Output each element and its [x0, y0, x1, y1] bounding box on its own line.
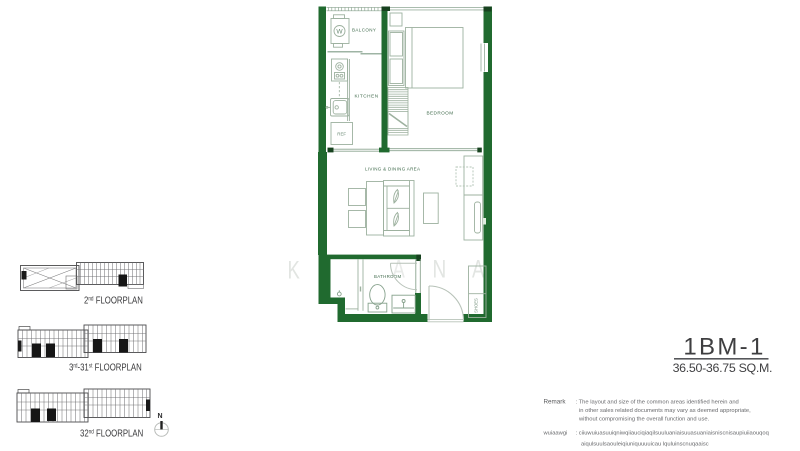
svg-text:aiqulsuulsaouleiqiuniquuuuicau: aiqulsuulsaouleiqiuniquuuuicau lquluinsc…: [581, 442, 709, 448]
svg-text:Remark: Remark: [544, 398, 567, 405]
svg-text:36.50-36.75 SQ.M.: 36.50-36.75 SQ.M.: [673, 361, 773, 375]
svg-text:A: A: [472, 255, 485, 283]
svg-text:: The layout and size of the c: : The layout and size of the common area…: [576, 399, 739, 405]
svg-text:W: W: [336, 28, 343, 35]
svg-text:BEDROOM: BEDROOM: [427, 110, 454, 115]
svg-text:SHOES: SHOES: [473, 298, 478, 313]
svg-text:REF: REF: [337, 132, 346, 137]
svg-text:wuiaawgi: wuiaawgi: [543, 431, 568, 437]
svg-text:in other sales related documen: in other sales related documents may var…: [579, 408, 751, 414]
svg-text:without compromising the overa: without compromising the overall functio…: [578, 416, 710, 422]
svg-text:BALCONY: BALCONY: [352, 27, 376, 32]
svg-text:2nd FLOORPLAN: 2nd FLOORPLAN: [84, 295, 143, 306]
svg-text:3rd-31st FLOORPLAN: 3rd-31st FLOORPLAN: [69, 362, 142, 373]
svg-text:N: N: [158, 413, 163, 420]
svg-text:: ciiuwuiuasuuiqniwqiiauciqiaq: : ciiuwuiuasuuiqniwqiiauciqiaqilsuuluani…: [576, 431, 769, 437]
svg-text:BATHROOM: BATHROOM: [374, 274, 401, 279]
svg-text:KITCHEN: KITCHEN: [355, 93, 379, 98]
svg-text:N: N: [433, 255, 447, 283]
svg-text:K: K: [288, 256, 301, 284]
svg-text:LIVING & DINING AREA: LIVING & DINING AREA: [365, 167, 420, 172]
svg-text:1BM-1: 1BM-1: [683, 334, 765, 361]
